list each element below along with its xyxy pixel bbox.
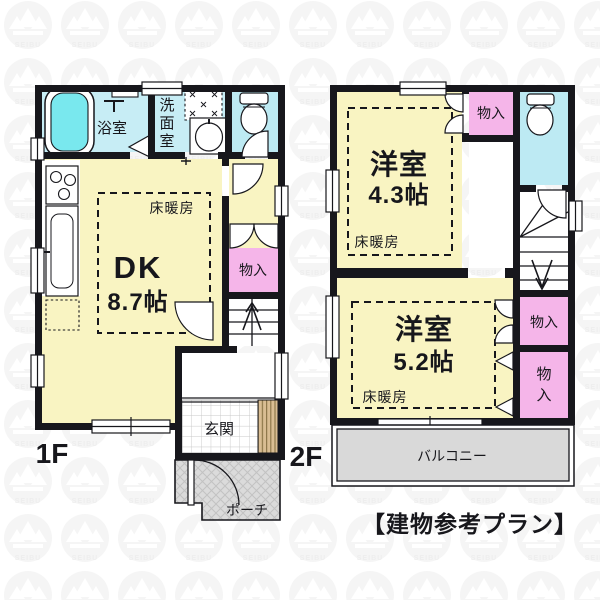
closet-mid-label: 物入 (530, 314, 558, 330)
dk-floor-heating-label: 床暖房 (150, 200, 195, 216)
kitchen-stove (46, 166, 78, 204)
floorplan-canvas: SEIBU (0, 0, 600, 600)
entrance-label: 玄関 (204, 421, 234, 438)
room-b-heating-label: 床暖房 (363, 389, 408, 405)
room-b-size-label: 5.2帖 (393, 349, 454, 376)
floor-2-label: 2F (290, 441, 323, 472)
closet-top-label: 物入 (477, 105, 505, 121)
washroom-label-2: 面 (159, 115, 174, 132)
wash-basin (190, 118, 228, 154)
entrance-door-leaf (188, 460, 194, 505)
closet-1f-label: 物入 (239, 262, 267, 278)
balcony-label: バルコニー (417, 448, 487, 464)
bathroom-label: 浴室 (97, 120, 127, 137)
floor-2-plan: 洋室 4.3帖 床暖房 物入 洋室 5.2帖 床暖房 物入 物 入 バルコニー … (290, 82, 582, 486)
toilet-2f-fixture (527, 94, 554, 135)
room-a-size-label: 4.3帖 (368, 182, 429, 209)
entrance-hall-floor2 (182, 353, 278, 400)
closet-bottom-label-1: 物 (536, 366, 551, 383)
dk-size-label: 8.7帖 (107, 289, 168, 316)
hall-2f-floor (469, 142, 513, 268)
toilet-1f-fixture (240, 93, 268, 134)
washroom-label-1: 洗 (159, 97, 174, 114)
dk-name-label: DK (114, 250, 163, 285)
room-b-name-label: 洋室 (395, 313, 453, 345)
washer-pad (185, 88, 222, 120)
closet-bottom-label-2: 入 (536, 387, 551, 404)
porch-label: ポーチ (226, 502, 268, 518)
bathtub (51, 93, 88, 151)
washroom-label-3: 室 (159, 133, 174, 150)
plan-caption: 【建物参考プラン】 (362, 511, 578, 537)
shoe-cabinet (258, 400, 278, 453)
floor-1-label: 1F (36, 438, 69, 469)
room-a-name-label: 洋室 (370, 148, 428, 180)
room-a-heating-label: 床暖房 (355, 234, 400, 250)
closet-bottom-floor (520, 352, 568, 418)
floorplan-drawing: SEIBU (0, 0, 600, 600)
